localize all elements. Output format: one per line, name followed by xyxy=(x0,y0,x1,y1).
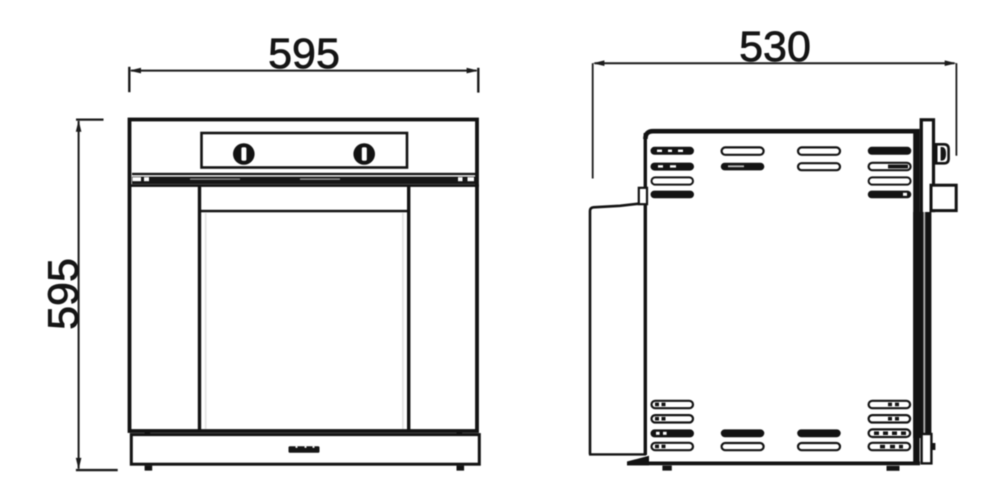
svg-text:530: 530 xyxy=(739,23,811,71)
svg-text:595: 595 xyxy=(40,258,88,330)
svg-text:595: 595 xyxy=(268,30,340,78)
